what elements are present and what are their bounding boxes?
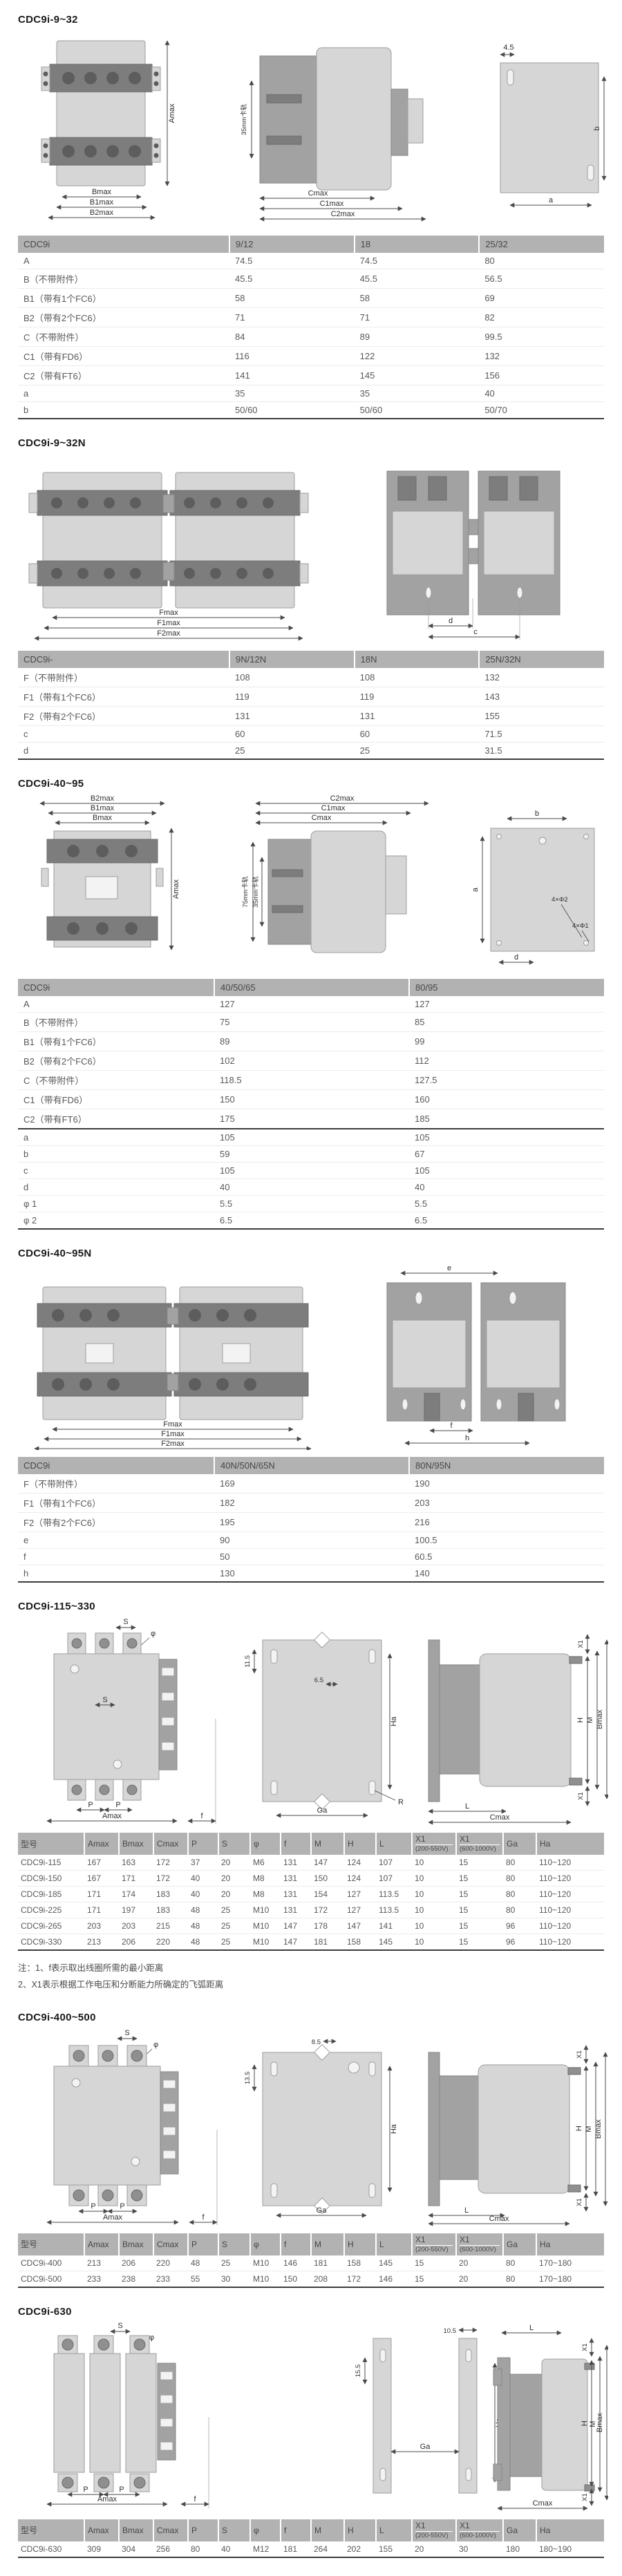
table-cell: 108 — [355, 668, 480, 687]
table-cell: 30 — [218, 2271, 250, 2287]
dim-label: Fmax — [159, 609, 178, 617]
dim-label: F2max — [157, 629, 180, 638]
table-cell: 127 — [214, 996, 409, 1013]
table-cell: 25 — [218, 1918, 250, 1934]
table-cell: 20 — [456, 2255, 503, 2271]
table-row: F2（带有2个FC6）195216 — [18, 1513, 604, 1532]
dimensions-table: CDC9i40N/50N/65N80N/95NF（不带附件）169190F1（带… — [18, 1457, 604, 1583]
header-row: 型号AmaxBmaxCmaxPSφfMHLX1(200-550V)X1(600-… — [18, 2233, 604, 2255]
table-cell: 60 — [229, 726, 355, 743]
dim-label: X1 — [576, 2198, 583, 2206]
table-cell: 48 — [188, 1934, 218, 1951]
table-cell: 147 — [311, 1855, 344, 1871]
table-cell: M8 — [250, 1887, 281, 1902]
column-header: φ — [250, 1833, 281, 1855]
column-header: X1(600-1000V) — [456, 1833, 503, 1855]
section-title: CDC9i-40~95 — [18, 778, 622, 790]
dim-label: 75mm卡轨 — [241, 876, 249, 908]
table-cell: CDC9i-500 — [18, 2271, 84, 2287]
table-row: a105105 — [18, 1129, 604, 1146]
table-cell: 171 — [84, 1902, 119, 1918]
table-cell: 202 — [344, 2541, 376, 2557]
table-cell: c — [18, 726, 229, 743]
dim-label: f — [450, 1422, 453, 1430]
column-header: 25N/32N — [479, 651, 604, 668]
table-wrapper: CDC9i-9N/12N18N25N/32NF（不带附件）108108132F1… — [18, 651, 604, 760]
side-view-drawing: L X1 H M Bmax X1 — [493, 2324, 607, 2508]
table-row: CDC9i-6303093042568040M12181264202155203… — [18, 2541, 604, 2557]
column-header: 型号 — [18, 2233, 84, 2255]
table-cell: a — [18, 1129, 214, 1146]
table-cell: 206 — [119, 1934, 153, 1951]
table-cell: F（不带附件） — [18, 668, 229, 687]
dimension-figures: Fmax F1max F2max — [14, 452, 608, 644]
table-cell: 96 — [503, 1934, 536, 1951]
dim-label: h — [465, 1434, 469, 1442]
table-cell: 180~190 — [536, 2541, 604, 2557]
column-header: Bmax — [119, 2519, 153, 2541]
table-cell: 150 — [214, 1090, 409, 1109]
table-cell: b — [18, 1146, 214, 1163]
dim-label: Fmax — [163, 1420, 182, 1429]
table-cell: 80 — [503, 1887, 536, 1902]
dim-label: Bmax — [93, 814, 113, 822]
table-cell: 233 — [153, 2271, 188, 2287]
dim-label: B1max — [91, 804, 115, 812]
table-cell: 35 — [355, 385, 480, 402]
column-header: 40/50/65 — [214, 979, 409, 996]
table-row: b5967 — [18, 1146, 604, 1163]
table-cell: 50 — [214, 1549, 409, 1565]
table-cell: 146 — [281, 2255, 311, 2271]
table-cell: CDC9i-150 — [18, 1871, 84, 1887]
table-cell: φ 2 — [18, 1212, 214, 1230]
table-cell: 143 — [479, 687, 604, 707]
table-cell: 102 — [214, 1051, 409, 1071]
front-view-drawing: Amax Bmax B1max B2max — [41, 41, 176, 218]
column-header: 18 — [355, 236, 480, 253]
section-cdc9i-9-32: CDC9i-9~32 Amax — [0, 14, 622, 419]
column-header: L — [376, 2233, 412, 2255]
dim-label: R — [398, 1798, 404, 1806]
dim-label: X1 — [577, 1792, 585, 1800]
dimension-diagram: Amax Bmax B1max B2max 35mm卡轨 — [14, 28, 608, 229]
table-cell: 113.5 — [376, 1902, 412, 1918]
side-view-drawing: C2max C1max Cmax 75mm卡轨 35mm卡轨 — [241, 794, 428, 953]
table-cell: 60 — [355, 726, 480, 743]
table-row: b50/6050/6050/70 — [18, 402, 604, 419]
column-header: Amax — [84, 2233, 119, 2255]
table-row: C1（带有FD6）116122132 — [18, 347, 604, 366]
table-row: B（不带附件）7585 — [18, 1013, 604, 1032]
table-cell: 216 — [409, 1513, 604, 1532]
table-row: CDC9i-1501671711724020M81311501241071015… — [18, 1871, 604, 1887]
section-cdc9i-630: CDC9i-630 S φ — [0, 2306, 622, 2558]
column-header: 型号 — [18, 2519, 84, 2541]
column-header: H — [344, 2519, 376, 2541]
column-header: X1(200-550V) — [412, 1833, 456, 1855]
table-cell: 132 — [479, 347, 604, 366]
column-header: Ha — [536, 2519, 604, 2541]
table-row: CDC9i-2251711971834825M10131172127113.51… — [18, 1902, 604, 1918]
table-cell: 15 — [456, 1934, 503, 1951]
table-cell: 158 — [344, 1934, 376, 1951]
table-cell: 169 — [214, 1474, 409, 1494]
table-row: CDC9i-1151671631723720M61311471241071015… — [18, 1855, 604, 1871]
dim-label: d — [514, 953, 518, 962]
section-title: CDC9i-630 — [18, 2306, 622, 2318]
table-cell: 174 — [119, 1887, 153, 1902]
table-cell: 182 — [214, 1494, 409, 1513]
table-cell: 35 — [229, 385, 355, 402]
dimension-figures: S φ P P Amax — [14, 2026, 608, 2226]
table-cell: 122 — [355, 347, 480, 366]
column-header: f — [281, 1833, 311, 1855]
table-cell: 110~120 — [536, 1918, 604, 1934]
dim-label: S — [102, 1696, 107, 1704]
table-cell: 48 — [188, 1902, 218, 1918]
table-row: C（不带附件）118.5127.5 — [18, 1071, 604, 1090]
table-cell: C（不带附件） — [18, 1071, 214, 1090]
table-cell: 112 — [409, 1051, 604, 1071]
dim-label: C1max — [320, 200, 344, 208]
table-cell: 105 — [409, 1163, 604, 1179]
table-cell: 167 — [84, 1855, 119, 1871]
dim-label: Cmax — [312, 814, 332, 822]
table-cell: c — [18, 1163, 214, 1179]
table-row: CDC9i-2652032032154825M10147178147141101… — [18, 1918, 604, 1934]
table-cell: 50/70 — [479, 402, 604, 419]
dim-label: L — [464, 2206, 469, 2215]
table-cell: 264 — [311, 2541, 344, 2557]
table-cell: 58 — [229, 289, 355, 308]
table-cell: 118.5 — [214, 1071, 409, 1090]
dim-label: Ha — [390, 2124, 398, 2134]
table-cell: 80 — [503, 1902, 536, 1918]
table-cell: 171 — [119, 1871, 153, 1887]
column-header: 9/12 — [229, 236, 355, 253]
column-header: Bmax — [119, 2233, 153, 2255]
dim-label: H — [576, 1717, 585, 1723]
table-cell: C2（带有FT6） — [18, 1109, 214, 1129]
dim-label: C1max — [321, 804, 346, 812]
table-cell: 71 — [229, 308, 355, 327]
table-cell: C1（带有FD6） — [18, 1090, 214, 1109]
column-header: f — [281, 2233, 311, 2255]
dimensions-table: CDC9i-9N/12N18N25N/32NF（不带附件）108108132F1… — [18, 651, 604, 760]
table-row: h130140 — [18, 1565, 604, 1583]
table-cell: 181 — [311, 1934, 344, 1951]
dim-label: X1 — [581, 2493, 589, 2501]
table-cell: 99.5 — [479, 327, 604, 347]
dim-label: Amax — [102, 1812, 122, 1820]
table-row: C2（带有FT6）175185 — [18, 1109, 604, 1129]
table-cell: 304 — [119, 2541, 153, 2557]
table-cell: 82 — [479, 308, 604, 327]
dimension-diagram: S φ P P Amax — [14, 2026, 608, 2226]
table-cell: 40 — [214, 1179, 409, 1196]
front-view-drawing: Fmax F1max F2max — [35, 1287, 311, 1449]
table-cell: 10 — [412, 1918, 456, 1934]
table-cell: 10 — [412, 1855, 456, 1871]
dim-label: Ga — [317, 2206, 328, 2215]
header-row: CDC9i-9N/12N18N25N/32N — [18, 651, 604, 668]
mounting-plate-drawing: b a 4×Φ2 4×Φ1 d — [471, 810, 594, 962]
table-cell: 197 — [119, 1902, 153, 1918]
top-view-drawing: d c — [387, 471, 560, 640]
dimension-figures: S φ S P P — [14, 1615, 608, 1826]
table-cell: M10 — [250, 1934, 281, 1951]
table-cell: 110~120 — [536, 1871, 604, 1887]
column-header: Ga — [503, 2233, 536, 2255]
table-cell: 181 — [281, 2541, 311, 2557]
section-title: CDC9i-9~32N — [18, 437, 622, 449]
table-cell: 155 — [376, 2541, 412, 2557]
table-row: f5060.5 — [18, 1549, 604, 1565]
table-cell: 89 — [355, 327, 480, 347]
table-cell: 56.5 — [479, 269, 604, 289]
table-cell: f — [18, 1549, 214, 1565]
side-view-drawing: X1 H M Bmax X1 L Cmax — [428, 1634, 607, 1822]
table-cell: 40 — [409, 1179, 604, 1196]
dim-label: Cmax — [490, 1813, 510, 1822]
table-cell: CDC9i-400 — [18, 2255, 84, 2271]
dim-label: Bmax — [596, 1709, 604, 1729]
dim-label: a — [549, 196, 554, 204]
table-row: C1（带有FD6）150160 — [18, 1090, 604, 1109]
table-cell: 75 — [214, 1013, 409, 1032]
section-title: CDC9i-40~95N — [18, 1248, 622, 1259]
front-view-drawing: S φ P P Amax — [47, 2029, 217, 2225]
header-row: CDC9i9/121825/32 — [18, 236, 604, 253]
column-header: P — [188, 2233, 218, 2255]
column-header: Cmax — [153, 1833, 188, 1855]
table-cell: 71.5 — [479, 726, 604, 743]
note-line: 2、X1表示根据工作电压和分断能力所确定的飞弧距离 — [18, 1977, 604, 1994]
section-cdc9i-9-32n: CDC9i-9~32N — [0, 437, 622, 760]
table-row: B1（带有1个FC6）585869 — [18, 289, 604, 308]
table-cell: 15 — [456, 1918, 503, 1934]
dim-label: P — [91, 2202, 95, 2211]
side-view-drawing: 35mm卡轨 Cmax C1max C2max — [240, 48, 426, 219]
dim-label: X1 — [576, 2050, 583, 2059]
header-row: 型号AmaxBmaxCmaxPSφfMHLX1(200-550V)X1(600-… — [18, 1833, 604, 1855]
table-cell: 124 — [344, 1855, 376, 1871]
table-cell: 256 — [153, 2541, 188, 2557]
table-cell: 156 — [479, 366, 604, 385]
table-row: B2（带有2个FC6）717182 — [18, 308, 604, 327]
table-cell: 10 — [412, 1934, 456, 1951]
column-header: Bmax — [119, 1833, 153, 1855]
column-header: S — [218, 2233, 250, 2255]
dim-label: b — [593, 126, 601, 131]
dim-label: 4×Φ2 — [552, 896, 568, 904]
table-cell: b — [18, 402, 229, 419]
dim-label: b — [535, 810, 539, 818]
table-cell: 119 — [355, 687, 480, 707]
column-header: M — [311, 2519, 344, 2541]
column-header: 9N/12N — [229, 651, 355, 668]
rail-plates-drawing: 10.5 15.5 Ha Ga — [355, 2327, 503, 2493]
table-cell: 99 — [409, 1032, 604, 1051]
dim-label: S — [123, 1618, 128, 1626]
table-cell: B2（带有2个FC6） — [18, 308, 229, 327]
table-cell: 15 — [412, 2255, 456, 2271]
table-cell: 172 — [153, 1855, 188, 1871]
dim-label: 35mm卡轨 — [252, 876, 260, 908]
table-cell: 238 — [119, 2271, 153, 2287]
table-cell: 45.5 — [229, 269, 355, 289]
dim-label: Bmax — [92, 188, 112, 196]
table-cell: 20 — [412, 2541, 456, 2557]
table-cell: M10 — [250, 1918, 281, 1934]
table-cell: 309 — [84, 2541, 119, 2557]
table-cell: CDC9i-265 — [18, 1918, 84, 1934]
table-cell: 172 — [311, 1902, 344, 1918]
table-cell: 131 — [229, 707, 355, 726]
table-cell: F2（带有2个FC6） — [18, 707, 229, 726]
section-cdc9i-400-500: CDC9i-400~500 S φ — [0, 2012, 622, 2288]
header-row: CDC9i40/50/6580/95 — [18, 979, 604, 996]
table-cell: F1（带有1个FC6） — [18, 1494, 214, 1513]
dim-label: F2max — [161, 1440, 185, 1448]
dim-label: f — [194, 2495, 196, 2503]
table-cell: F2（带有2个FC6） — [18, 1513, 214, 1532]
table-cell: 183 — [153, 1902, 188, 1918]
table-cell: 154 — [311, 1887, 344, 1902]
table-row: A74.574.580 — [18, 253, 604, 269]
dimension-diagram: S φ P P — [14, 2320, 608, 2512]
table-cell: 40 — [188, 1887, 218, 1902]
mounting-plate-drawing: 8.5 13.5 Ha Ga — [244, 2039, 398, 2215]
table-cell: 163 — [119, 1855, 153, 1871]
dim-label: L — [529, 2324, 534, 2332]
dim-label: Ga — [317, 1806, 328, 1815]
dim-label: 15.5 — [355, 2364, 362, 2377]
table-cell: 220 — [153, 1934, 188, 1951]
table-row: e90100.5 — [18, 1532, 604, 1549]
dim-label: Amax — [168, 103, 176, 123]
table-cell: 116 — [229, 347, 355, 366]
dimension-diagram: Fmax F1max F2max e — [14, 1262, 608, 1450]
column-header: Ha — [536, 2233, 604, 2255]
table-cell: 172 — [153, 1871, 188, 1887]
table-cell: 80 — [503, 2271, 536, 2287]
table-cell: CDC9i-185 — [18, 1887, 84, 1902]
table-cell: 113.5 — [376, 1887, 412, 1902]
table-cell: 110~120 — [536, 1855, 604, 1871]
dim-label: P — [88, 1801, 93, 1809]
mounting-plate-drawing: 4.5 b a — [500, 44, 604, 205]
table-cell: 131 — [281, 1871, 311, 1887]
table-cell: 85 — [409, 1013, 604, 1032]
table-cell: 25 — [218, 2255, 250, 2271]
table-cell: 15 — [456, 1887, 503, 1902]
table-cell: C1（带有FD6） — [18, 347, 229, 366]
dimension-diagram: B2max B1max Bmax Amax — [14, 792, 608, 972]
table-cell: 181 — [311, 2255, 344, 2271]
table-row: c105105 — [18, 1163, 604, 1179]
dim-label: Cmax — [308, 189, 328, 198]
table-row: C2（带有FT6）141145156 — [18, 366, 604, 385]
table-cell: 127 — [344, 1887, 376, 1902]
dim-label: H — [575, 2125, 583, 2130]
table-cell: 15 — [456, 1871, 503, 1887]
dim-label: Bmax — [596, 2412, 604, 2432]
section-cdc9i-40-95: CDC9i-40~95 B2max B1max Bmax — [0, 778, 622, 1230]
table-cell: 107 — [376, 1855, 412, 1871]
column-header: φ — [250, 2233, 281, 2255]
column-header: P — [188, 1833, 218, 1855]
table-cell: A — [18, 996, 214, 1013]
table-cell: 67 — [409, 1146, 604, 1163]
table-row: B1（带有1个FC6）8999 — [18, 1032, 604, 1051]
dim-label: M — [586, 1717, 594, 1723]
table-row: d4040 — [18, 1179, 604, 1196]
column-header: 80/95 — [409, 979, 604, 996]
table-cell: 206 — [119, 2255, 153, 2271]
table-cell: h — [18, 1565, 214, 1583]
table-cell: 25 — [218, 1902, 250, 1918]
column-header: 80N/95N — [409, 1457, 604, 1474]
table-cell: 220 — [153, 2255, 188, 2271]
table-cell: 160 — [409, 1090, 604, 1109]
column-header: 18N — [355, 651, 480, 668]
column-header: M — [311, 1833, 344, 1855]
table-cell: 147 — [281, 1934, 311, 1951]
table-cell: d — [18, 1179, 214, 1196]
table-cell: 5.5 — [409, 1196, 604, 1212]
table-row: a353540 — [18, 385, 604, 402]
table-cell: 71 — [355, 308, 480, 327]
dim-label: φ — [149, 2334, 154, 2342]
column-header: H — [344, 2233, 376, 2255]
dim-label: P — [120, 2202, 124, 2211]
table-cell: M8 — [250, 1871, 281, 1887]
column-header: H — [344, 1833, 376, 1855]
table-cell: 150 — [281, 2271, 311, 2287]
dim-label: 10.5 — [444, 2327, 457, 2335]
dim-label: F1max — [157, 619, 180, 627]
table-cell: B（不带附件） — [18, 269, 229, 289]
section-title: CDC9i-400~500 — [18, 2012, 622, 2023]
table-cell: 30 — [456, 2541, 503, 2557]
table-row: F2（带有2个FC6）131131155 — [18, 707, 604, 726]
column-header: 25/32 — [479, 236, 604, 253]
dim-label: F1max — [161, 1430, 185, 1438]
dim-label: P — [119, 2486, 124, 2494]
column-header: X1(600-1000V) — [456, 2519, 503, 2541]
table-cell: 20 — [456, 2271, 503, 2287]
table-cell: 203 — [409, 1494, 604, 1513]
dim-label: c — [473, 628, 478, 636]
dim-label: d — [449, 617, 453, 625]
table-row: CDC9i-1851711741834020M8131154127113.510… — [18, 1887, 604, 1902]
column-header: S — [218, 1833, 250, 1855]
dim-label: H — [581, 2420, 589, 2425]
table-row: CDC9i-5002332382335530M10150208172146152… — [18, 2271, 604, 2287]
table-cell: 40 — [188, 1871, 218, 1887]
table-cell: 185 — [409, 1109, 604, 1129]
dim-label: S — [124, 2029, 129, 2037]
table-cell: 58 — [355, 289, 480, 308]
table-cell: 10 — [412, 1902, 456, 1918]
dimensions-table: CDC9i9/121825/32A74.574.580B（不带附件）45.545… — [18, 236, 604, 419]
table-cell: 131 — [281, 1902, 311, 1918]
dim-label: a — [471, 887, 480, 892]
column-header: Amax — [84, 1833, 119, 1855]
dimensions-table: 型号AmaxBmaxCmaxPSφfMHLX1(200-550V)X1(600-… — [18, 2519, 604, 2558]
